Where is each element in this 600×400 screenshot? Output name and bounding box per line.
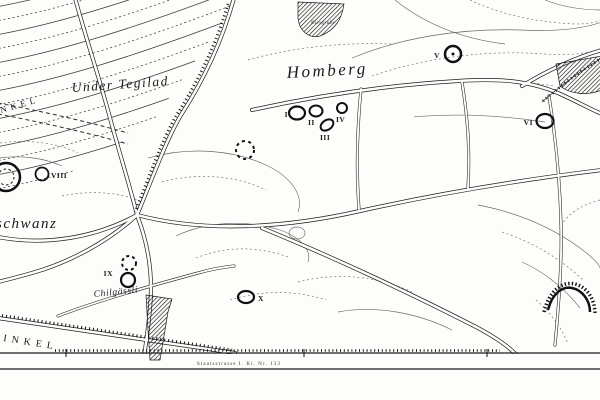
gravel-pit-area (298, 2, 344, 37)
tumulus-ii-circle (310, 106, 323, 117)
tumulus-ii: II (308, 106, 323, 128)
tumulus-i-circle (289, 107, 305, 120)
tumulus-v-label: V (434, 51, 440, 60)
label-winkel-bottom-partial: INKEL (3, 333, 59, 352)
tumulus-iii: III (319, 117, 336, 142)
place-labels: Under Tegilad Homberg schwanz Chilgässli… (0, 21, 368, 353)
tumulus-iv: IV (336, 103, 347, 124)
large-circle-outer (0, 163, 20, 191)
tumulus-x-label: X (258, 294, 264, 303)
contour-lines-lower-middle (0, 141, 452, 330)
tree-clump-right-edge (556, 56, 600, 93)
tumulus-ii-label: II (308, 118, 315, 127)
tumulus-i: I (285, 107, 305, 120)
tumulus-viii: VIII (36, 168, 68, 181)
map-canvas: Staatsstrasse I. Kl. Nr. 133 I II III IV (0, 0, 600, 400)
tumulus-v: V (434, 46, 461, 62)
tumulus-large-double-circle (0, 163, 20, 191)
road-network-centerline (0, 0, 600, 358)
tumulus-iii-label: III (320, 133, 330, 142)
tumulus-ix-dashed-circle (122, 256, 136, 270)
tumulus-i-label: I (285, 110, 288, 119)
quarry-arc-right (544, 283, 595, 314)
tumulus-viii-label: VIII (51, 171, 67, 180)
tumulus-vi-label: VI (524, 118, 533, 127)
tumulus-iv-label: IV (336, 115, 345, 124)
state-road: Staatsstrasse I. Kl. Nr. 133 (0, 349, 600, 369)
tumulus-iii-circle (319, 117, 336, 133)
tumulus-iv-circle (337, 103, 347, 113)
contour-lines-right-middle (478, 200, 600, 344)
tumulus-v-center-dot (452, 53, 455, 56)
tumulus-ix: IX (104, 256, 136, 287)
label-under-tegilad: Under Tegilad (71, 73, 169, 95)
label-homberg: Homberg (285, 59, 368, 82)
label-kiesgrube: Kiesgrube (310, 21, 336, 26)
tumulus-ix-label: IX (104, 269, 113, 278)
large-circle-inner-dashed (0, 169, 14, 185)
tumulus-viii-circle (36, 168, 49, 181)
label-schwanz-partial: schwanz (0, 216, 57, 232)
survey-map: Staatsstrasse I. Kl. Nr. 133 I II III IV (0, 0, 600, 400)
hedge-row-bottom-left (146, 295, 172, 360)
label-winkel-top-partial: NKEL (0, 94, 40, 115)
tumulus-x: X (238, 291, 264, 303)
state-road-label: Staatsstrasse I. Kl. Nr. 133 (197, 362, 281, 367)
small-contour-ring (289, 227, 305, 239)
dashed-circle-marker (236, 141, 254, 159)
